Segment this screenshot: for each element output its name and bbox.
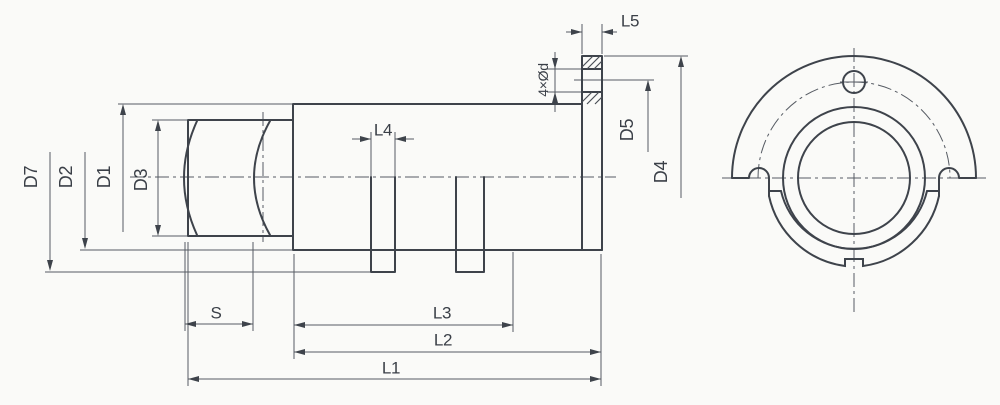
left-flat-and-notch	[732, 168, 781, 196]
sphere-silhouette-front	[184, 121, 197, 235]
dimension-lines	[50, 32, 681, 379]
dim-label-d5: D5	[617, 119, 637, 142]
dim-label-d1: D1	[94, 166, 114, 189]
drawing-sheet: D7 D2 D1 D3 4×Ød D5 D4 L5 L4 S L3 L2 L1	[0, 0, 1000, 405]
dim-label-l3: L3	[433, 304, 451, 323]
bayonet-slot-2	[456, 177, 484, 272]
front-view	[722, 48, 988, 312]
dim-label-d4: D4	[651, 161, 671, 184]
side-view: D7 D2 D1 D3 4×Ød D5 D4 L5 L4 S L3 L2 L1	[21, 12, 688, 387]
dim-label-s: S	[210, 304, 221, 323]
dim-label-l1: L1	[382, 359, 400, 378]
extension-lines	[45, 24, 688, 386]
dim-label-d2: D2	[56, 166, 76, 189]
technical-drawing: D7 D2 D1 D3 4×Ød D5 D4 L5 L4 S L3 L2 L1	[0, 0, 1000, 405]
sphere-silhouette-rear	[254, 121, 270, 235]
dim-label-l5: L5	[621, 12, 639, 31]
dim-label-bolt-holes: 4×Ød	[535, 63, 551, 96]
seat-section	[188, 120, 293, 236]
flange-section	[582, 56, 602, 250]
right-flat-and-notch	[927, 168, 976, 196]
dim-label-l4: L4	[374, 121, 392, 140]
bayonet-slot-1	[371, 177, 395, 272]
dim-label-d7: D7	[21, 166, 41, 189]
dim-label-d3: D3	[131, 169, 151, 192]
dim-label-l2: L2	[434, 331, 452, 350]
arrowheads	[47, 29, 684, 382]
